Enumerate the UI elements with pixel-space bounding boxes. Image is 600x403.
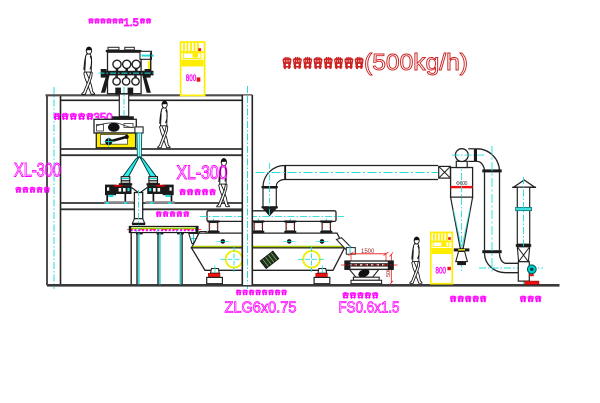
svg-text:XL-300: XL-300 — [14, 161, 61, 182]
svg-text:(500kg/h): (500kg/h) — [364, 49, 468, 75]
svg-text:1500: 1500 — [361, 249, 375, 255]
svg-text:ZLG6x0.75: ZLG6x0.75 — [225, 300, 297, 317]
svg-text:FS0.6x1.5: FS0.6x1.5 — [339, 300, 400, 317]
svg-text:800: 800 — [186, 73, 197, 84]
svg-text:1.5: 1.5 — [124, 17, 139, 29]
svg-text:XL-300: XL-300 — [177, 163, 228, 184]
svg-text:800: 800 — [436, 266, 447, 277]
